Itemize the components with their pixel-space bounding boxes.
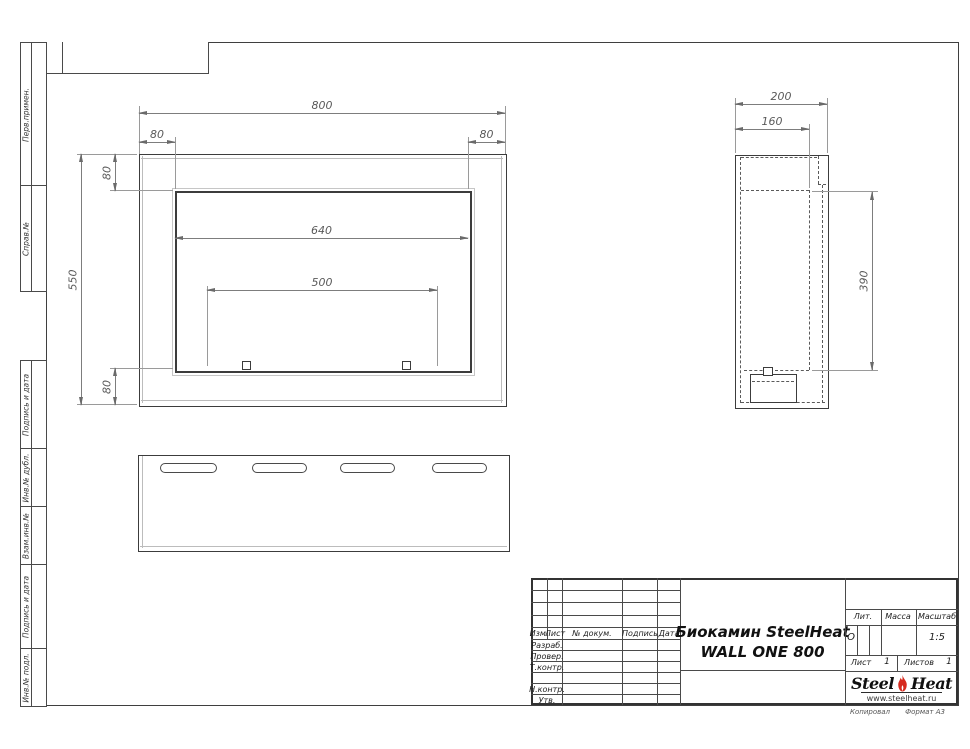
stamp-divider bbox=[31, 43, 32, 186]
ext-line bbox=[812, 191, 878, 192]
side-hidden-line bbox=[744, 370, 809, 371]
footer-format: Формат А3 bbox=[895, 708, 955, 716]
tb-line bbox=[897, 655, 898, 671]
side-hidden-line bbox=[741, 157, 817, 158]
arrow-icon bbox=[734, 127, 743, 131]
footer-copy: Копировал bbox=[840, 708, 900, 716]
dim-front-flange-top: 80 bbox=[115, 154, 116, 191]
stamp-inv-dubl: Инв.№ дубл. bbox=[20, 448, 47, 508]
tb-line bbox=[916, 609, 917, 655]
arrow-icon bbox=[734, 102, 743, 106]
arrow-icon bbox=[113, 183, 117, 192]
arrow-icon bbox=[429, 288, 438, 292]
dim-side-opening-height: 390 bbox=[872, 192, 873, 370]
dim-front-flange-left: 80 bbox=[139, 142, 175, 143]
dim-value: 640 bbox=[311, 224, 332, 237]
tb-sheet-label: Лист bbox=[851, 658, 871, 667]
ext-line bbox=[77, 154, 137, 155]
arrow-icon bbox=[497, 111, 506, 115]
arrow-icon bbox=[138, 111, 147, 115]
stamp-label: Инв.№ подл. bbox=[22, 653, 31, 702]
ext-line bbox=[175, 137, 176, 189]
arrow-icon bbox=[138, 140, 147, 144]
arrow-icon bbox=[801, 127, 810, 131]
tb-line bbox=[881, 609, 882, 655]
dim-value: 80 bbox=[150, 128, 164, 141]
side-hidden-line bbox=[741, 190, 809, 191]
tb-lit-value: О bbox=[847, 632, 855, 643]
ext-line bbox=[207, 286, 208, 366]
tb-lit-label: Лит. bbox=[854, 612, 872, 621]
dim-value: 800 bbox=[312, 99, 333, 112]
vent-slot-2 bbox=[252, 463, 307, 473]
corner-stamp-divider bbox=[62, 42, 63, 73]
tb-line bbox=[845, 609, 958, 610]
tb-scale-value: 1:5 bbox=[929, 632, 945, 643]
document-title-line2: WALL ONE 800 bbox=[700, 642, 824, 662]
stamp-perv-primen: Перв.примен. bbox=[20, 42, 47, 187]
stamp-podpis-data-1: Подпись и дата bbox=[20, 360, 47, 450]
corner-stamp-box bbox=[46, 42, 209, 74]
arrow-icon bbox=[497, 140, 506, 144]
logo-text-heat: Heat bbox=[911, 674, 952, 693]
arrow-icon bbox=[113, 397, 117, 406]
tb-row-prover: Провер. bbox=[530, 652, 563, 661]
tb-line bbox=[845, 625, 958, 626]
arrow-icon bbox=[870, 191, 874, 200]
ext-line bbox=[812, 370, 878, 371]
side-burner-tab bbox=[763, 367, 773, 376]
tb-sheets-label: Листов bbox=[904, 658, 934, 667]
front-fold-line-bottom bbox=[141, 400, 503, 401]
stamp-sprav-no: Справ.№ bbox=[20, 185, 47, 292]
tb-row-razrab: Разраб. bbox=[531, 641, 562, 650]
stamp-label: Перв.примен. bbox=[22, 88, 31, 142]
stamp-vzam-inv: Взам.инв.№ bbox=[20, 506, 47, 566]
tb-col-docnum: № докум. bbox=[572, 629, 611, 638]
stamp-divider bbox=[31, 565, 32, 649]
tb-sheet-value: 1 bbox=[884, 657, 890, 667]
tb-line bbox=[622, 578, 623, 705]
dim-value: 500 bbox=[312, 276, 333, 289]
front-fold-line-top bbox=[141, 158, 503, 159]
side-burner-hidden-line bbox=[752, 381, 794, 382]
tb-scale-label: Масштаб bbox=[918, 612, 956, 621]
stamp-label: Инв.№ дубл. bbox=[22, 454, 31, 503]
dim-front-flange-bottom: 80 bbox=[115, 368, 116, 405]
ext-line bbox=[110, 190, 173, 191]
dim-value: 550 bbox=[67, 269, 80, 290]
ext-line bbox=[437, 286, 438, 366]
front-burner-tab-right bbox=[402, 361, 411, 370]
arrow-icon bbox=[870, 362, 874, 371]
flame-icon bbox=[896, 675, 909, 692]
arrow-icon bbox=[113, 367, 117, 376]
dim-value: 390 bbox=[858, 271, 871, 292]
dim-side-inner-depth: 160 bbox=[735, 129, 809, 130]
side-notch-line bbox=[818, 184, 826, 185]
tb-mass-label: Масса bbox=[885, 612, 911, 621]
arrow-icon bbox=[819, 102, 828, 106]
tb-line bbox=[657, 578, 658, 705]
vent-slot-1 bbox=[160, 463, 217, 473]
stamp-label: Справ.№ bbox=[22, 221, 31, 255]
steelheat-logo: Steel Heat www.steelheat.ru bbox=[845, 671, 958, 705]
ext-line bbox=[809, 124, 810, 188]
logo-text-steel: Steel bbox=[851, 674, 894, 693]
front-fold-line-right bbox=[501, 156, 502, 403]
bottom-fold-line bbox=[140, 546, 507, 547]
ext-line bbox=[735, 98, 736, 153]
dim-value: 200 bbox=[771, 90, 792, 103]
stamp-divider bbox=[31, 449, 32, 507]
document-title-line1: Биокамин SteelHeat bbox=[675, 622, 849, 642]
arrow-icon bbox=[174, 236, 183, 240]
side-hidden-line bbox=[740, 157, 741, 403]
vent-slot-3 bbox=[340, 463, 395, 473]
document-title: Биокамин SteelHeat WALL ONE 800 bbox=[680, 578, 845, 670]
tb-row-nkontr: Н.контр. bbox=[529, 685, 565, 694]
side-burner-block bbox=[750, 374, 797, 403]
tb-row-tkontr: Т.контр. bbox=[530, 663, 565, 672]
ext-line bbox=[110, 368, 173, 369]
tb-col-list: Лист bbox=[545, 629, 565, 638]
dim-front-burner-width: 500 bbox=[207, 290, 437, 291]
front-fold-line-left bbox=[142, 156, 143, 403]
side-hidden-line bbox=[809, 190, 810, 370]
dim-value: 80 bbox=[480, 128, 494, 141]
stamp-divider bbox=[31, 186, 32, 291]
dim-value: 80 bbox=[101, 166, 114, 180]
tb-line bbox=[845, 655, 958, 656]
dim-front-width: 800 bbox=[139, 113, 505, 114]
arrow-icon bbox=[460, 236, 469, 240]
stamp-label: Подпись и дата bbox=[22, 374, 31, 436]
front-burner-tab-left bbox=[242, 361, 251, 370]
stamp-label: Подпись и дата bbox=[22, 576, 31, 638]
dim-value: 80 bbox=[101, 380, 114, 394]
ext-line bbox=[468, 137, 469, 189]
logo-row: Steel Heat bbox=[851, 674, 952, 693]
tb-line bbox=[857, 625, 858, 655]
arrow-icon bbox=[467, 140, 476, 144]
arrow-icon bbox=[79, 397, 83, 406]
tb-line bbox=[869, 625, 870, 655]
stamp-podpis-data-2: Подпись и дата bbox=[20, 564, 47, 650]
tb-col-podpis: Подпись bbox=[622, 629, 658, 638]
dim-front-opening-width: 640 bbox=[175, 238, 468, 239]
ext-line bbox=[77, 404, 137, 405]
tb-line bbox=[680, 670, 845, 671]
stamp-divider bbox=[31, 361, 32, 449]
arrow-icon bbox=[206, 288, 215, 292]
bottom-fold-line-left bbox=[142, 456, 143, 548]
logo-website: www.steelheat.ru bbox=[861, 692, 943, 703]
stamp-label: Взам.инв.№ bbox=[22, 513, 31, 559]
stamp-divider bbox=[31, 507, 32, 565]
stamp-inv-podl: Инв.№ подл. bbox=[20, 648, 47, 707]
tb-sheets-value: 1 bbox=[946, 657, 952, 667]
stamp-divider bbox=[31, 649, 32, 706]
arrow-icon bbox=[167, 140, 176, 144]
ext-line bbox=[827, 98, 828, 153]
tb-row-utv: Утв. bbox=[539, 696, 556, 705]
arrow-icon bbox=[79, 153, 83, 162]
dim-front-height: 550 bbox=[81, 154, 82, 405]
dim-value: 160 bbox=[762, 115, 783, 128]
dim-front-flange-right: 80 bbox=[468, 142, 505, 143]
vent-slot-4 bbox=[432, 463, 487, 473]
dim-side-depth: 200 bbox=[735, 104, 827, 105]
arrow-icon bbox=[113, 153, 117, 162]
drawing-sheet: Перв.примен. Справ.№ Подпись и дата Инв.… bbox=[0, 0, 970, 749]
side-notch-line bbox=[818, 156, 819, 184]
